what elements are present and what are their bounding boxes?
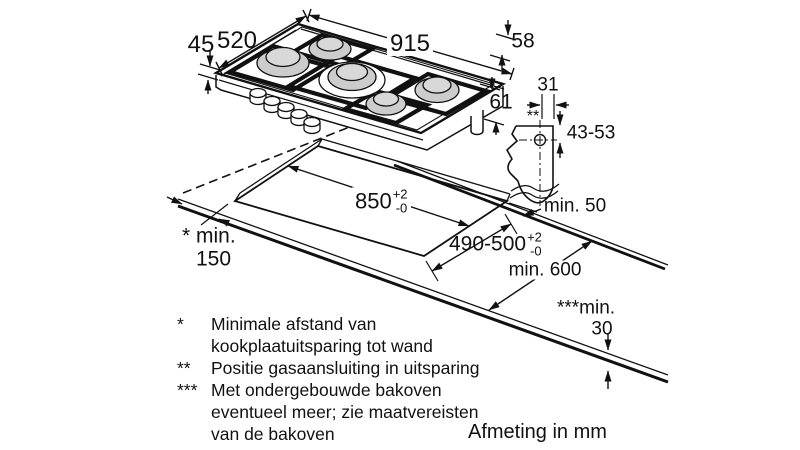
footnote-line: Met ondergebouwde bakoven bbox=[211, 379, 479, 401]
detail-top-right-edge bbox=[516, 126, 553, 187]
dim-min-50: min. 50 bbox=[544, 197, 606, 216]
knob-3-top bbox=[278, 103, 294, 112]
dim-height-58: 58 bbox=[511, 31, 534, 52]
footnote-text: Met ondergebouwde bakoven eventueel meer… bbox=[211, 379, 479, 445]
footnote-built-under-oven: *** Met ondergebouwde bakoven eventueel … bbox=[177, 379, 480, 445]
footnotes: * Minimale afstand van kookplaatuitspari… bbox=[177, 313, 480, 445]
footnote-line: kookplaatuitsparing tot wand bbox=[211, 335, 433, 357]
dim-width-915: 915 bbox=[387, 32, 433, 56]
gas-connection-detail bbox=[507, 120, 559, 206]
tolerance-minus: -0 bbox=[530, 244, 545, 258]
cutout-depth-value: 490-500 bbox=[449, 234, 526, 255]
tolerance-minus: -0 bbox=[396, 201, 411, 215]
dim-min-wall-label: * min. bbox=[182, 226, 236, 247]
footnote-line: van de bakoven bbox=[211, 423, 479, 445]
wall-hidden-line bbox=[183, 126, 352, 193]
dim-height-45: 45 bbox=[188, 33, 215, 57]
footnote-marker: *** bbox=[177, 379, 211, 445]
dim-min-600: min. 600 bbox=[506, 261, 585, 280]
dim-line-min-150 bbox=[167, 197, 234, 226]
dim-depth-520: 520 bbox=[217, 29, 257, 53]
footnote-wall-distance: * Minimale afstand van kookplaatuitspari… bbox=[177, 313, 480, 357]
gas-pipe bbox=[471, 110, 483, 135]
footnote-line: eventueel meer; zie maatvereisten bbox=[211, 401, 479, 423]
knob-2-top bbox=[264, 97, 280, 106]
cutout-depth-tolerance: +2 -0 bbox=[527, 230, 542, 257]
footnote-line: Positie gasaansluiting in uitsparing bbox=[211, 357, 480, 379]
footnote-text: Minimale afstand van kookplaatuitsparing… bbox=[211, 313, 433, 357]
footnote-text: Positie gasaansluiting in uitsparing bbox=[211, 357, 480, 379]
footnote-gas-position: ** Positie gasaansluiting in uitsparing bbox=[177, 357, 480, 379]
cutout-length-value: 850 bbox=[355, 190, 392, 212]
wok-burner-cap bbox=[337, 64, 368, 81]
dim-min-oven-value: 30 bbox=[591, 320, 612, 339]
detail-jagged-edge bbox=[507, 126, 518, 181]
knob-5-top bbox=[304, 118, 320, 127]
footnote-marker: ** bbox=[177, 357, 211, 379]
cutout-length-tolerance: +2 -0 bbox=[393, 187, 408, 214]
dim-gas-height-61: 61 bbox=[489, 92, 512, 113]
installation-diagram: 45 520 915 58 61 31 ** 43-53 min. 50 850… bbox=[0, 0, 800, 450]
burner-front-center-cap bbox=[374, 92, 399, 106]
dim-cutout-length-850: 850 +2 -0 bbox=[352, 187, 411, 214]
gas-marker-asterisks: ** bbox=[527, 109, 539, 125]
tolerance-plus: +2 bbox=[527, 230, 542, 244]
footnote-marker: * bbox=[177, 313, 211, 357]
cooktop bbox=[216, 24, 504, 150]
knob-1-top bbox=[250, 89, 266, 98]
dim-gas-offset-31: 31 bbox=[537, 76, 558, 95]
dim-gas-depth-43-53: 43-53 bbox=[567, 124, 616, 143]
unit-note: Afmeting in mm bbox=[468, 421, 607, 444]
dim-min-wall-value: 150 bbox=[196, 249, 231, 270]
burner-rear-left-cap bbox=[317, 37, 343, 51]
tolerance-plus: +2 bbox=[393, 187, 408, 201]
dim-cutout-depth-490-500: 490-500 +2 -0 bbox=[449, 230, 542, 257]
footnote-line: Minimale afstand van bbox=[211, 313, 433, 335]
burner-right-cap bbox=[423, 77, 451, 93]
knob-4-top bbox=[291, 110, 307, 119]
dim-min-oven-label: ***min. bbox=[557, 299, 615, 318]
burner-front-left-cap bbox=[266, 48, 300, 67]
